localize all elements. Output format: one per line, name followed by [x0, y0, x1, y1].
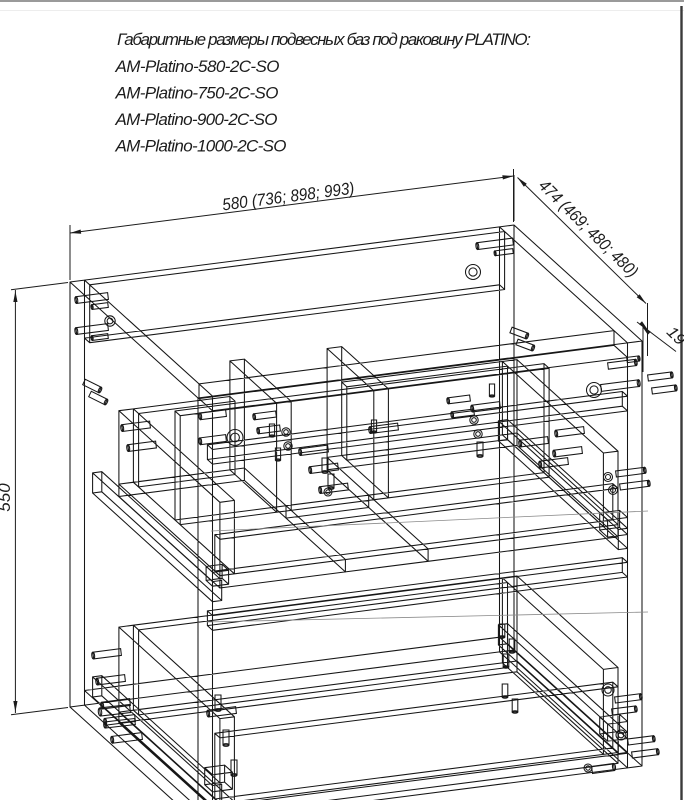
svg-text:AM-Platino-580-2C-SO: AM-Platino-580-2C-SO	[115, 57, 280, 76]
svg-text:AM-Platino-900-2C-SO: AM-Platino-900-2C-SO	[115, 110, 278, 129]
svg-text:AM-Platino-1000-2C-SO: AM-Platino-1000-2C-SO	[115, 136, 287, 155]
svg-text:AM-Platino-750-2C-SO: AM-Platino-750-2C-SO	[115, 84, 279, 103]
svg-text:550: 550	[0, 483, 14, 512]
svg-text:Габаритные размеры подвесных б: Габаритные размеры подвесных баз под рак…	[117, 30, 531, 49]
